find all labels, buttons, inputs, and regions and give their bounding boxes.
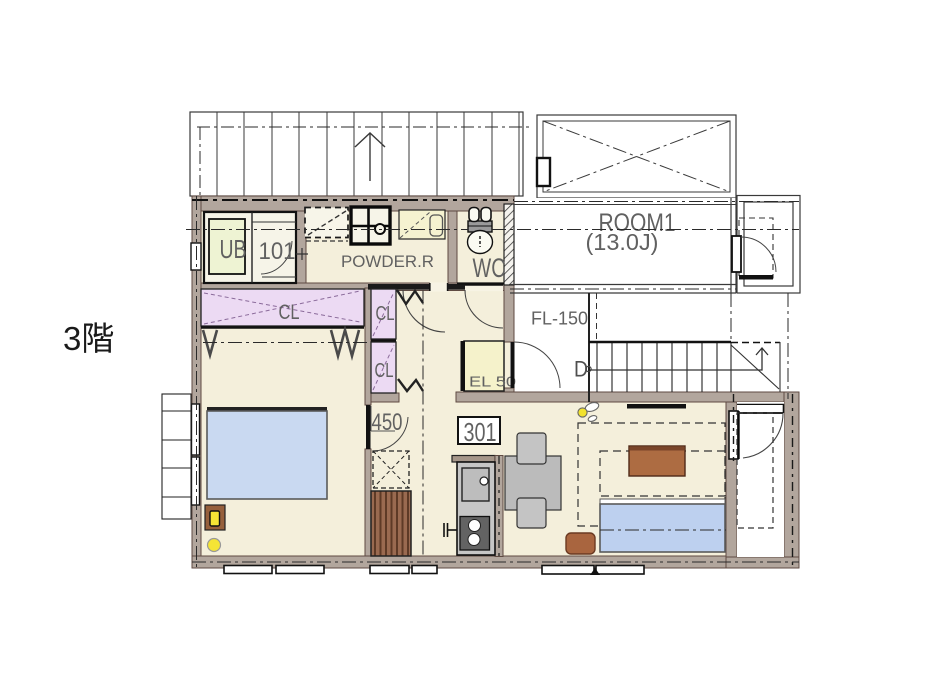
svg-text:FL-150: FL-150 [531,309,588,329]
svg-text:EL 50: EL 50 [469,374,516,391]
svg-text:CL: CL [279,301,300,324]
svg-text:WC: WC [473,253,506,283]
svg-text:POWDER.R: POWDER.R [341,252,434,271]
svg-text:450: 450 [372,409,403,436]
svg-text:101: 101 [259,238,296,265]
svg-text:301: 301 [464,417,497,447]
svg-text:(13.0J): (13.0J) [586,229,659,255]
svg-text:3階: 3階 [63,320,114,357]
svg-text:CL: CL [375,360,394,382]
svg-text:UB: UB [220,234,247,264]
svg-text:CL: CL [376,303,395,325]
